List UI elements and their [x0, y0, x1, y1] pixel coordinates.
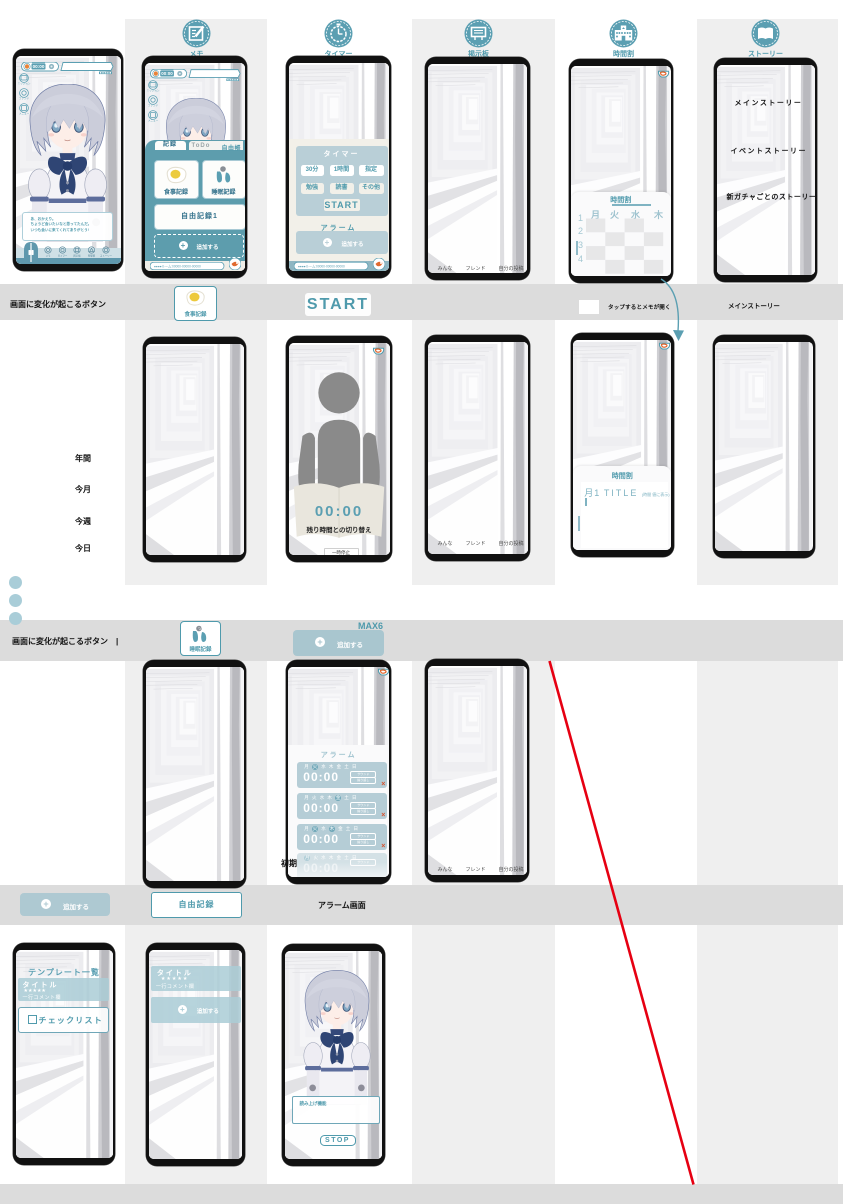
svg-text:時間割: 時間割 [87, 253, 95, 257]
svg-text:タイマー: タイマー [57, 253, 67, 257]
svg-text:掲示板: 掲示板 [73, 253, 81, 257]
svg-text:メモ: メモ [45, 254, 50, 257]
svg-text:ストーリー: ストーリー [100, 253, 113, 257]
svg-text:ツ: ツ [198, 626, 202, 631]
